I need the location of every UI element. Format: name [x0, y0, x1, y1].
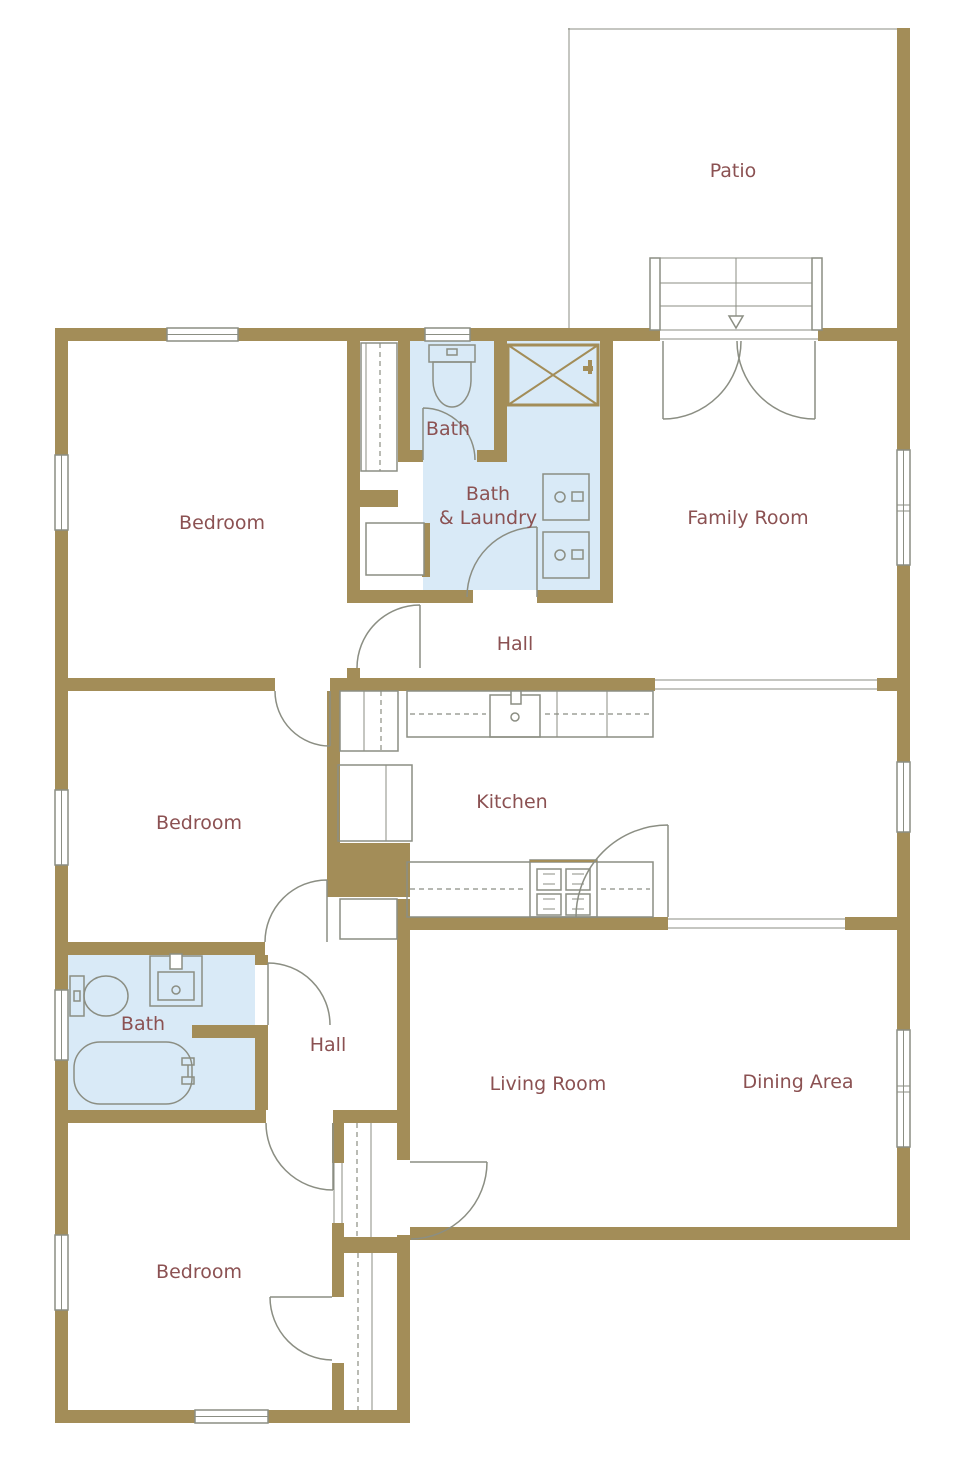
room-label-bath-laundry-line1: Bath — [466, 483, 510, 505]
wall-segment — [347, 668, 360, 678]
room-label-hall-top: Hall — [497, 633, 534, 655]
wall-segment — [410, 917, 668, 930]
door-arc — [268, 963, 330, 1025]
refrigerator-icon — [338, 765, 412, 841]
wall-segment — [332, 1223, 344, 1297]
stove-icon — [530, 860, 597, 917]
kitchen-sink-icon — [490, 691, 540, 737]
wall-segment — [397, 899, 410, 1110]
room-label-kitchen: Kitchen — [476, 791, 547, 813]
wall-segment — [332, 1363, 344, 1410]
wall-segment — [410, 1227, 910, 1240]
closet-sliding — [358, 1253, 372, 1410]
wall-segment — [55, 865, 68, 990]
wall-segment — [897, 1147, 910, 1240]
closet-sliding — [357, 1123, 371, 1237]
wall-segment — [398, 341, 410, 450]
door-arc — [266, 1123, 333, 1190]
window — [897, 762, 910, 832]
hall-closet — [340, 691, 398, 751]
wall-segment — [55, 942, 265, 955]
wall-segment — [470, 328, 660, 341]
floor-plan: Patio Bedroom Bath Bath & Laundry Family… — [0, 0, 960, 1465]
room-label-bath-laundry-line2: & Laundry — [439, 507, 537, 529]
wall-segment — [897, 565, 910, 762]
room-label-living-room: Living Room — [490, 1073, 607, 1095]
wall-segment — [600, 341, 613, 603]
stair-rail — [650, 258, 660, 330]
window — [897, 1030, 910, 1147]
stair-direction-arrow-icon — [729, 316, 743, 328]
door-arc — [357, 605, 420, 668]
wall-segment — [255, 955, 268, 965]
walls — [55, 28, 910, 1423]
wall-segment — [255, 1025, 268, 1110]
wall-segment — [330, 678, 655, 691]
wall-segment — [55, 1410, 195, 1423]
cabinet — [366, 523, 424, 575]
wall-segment — [55, 1060, 68, 1235]
wall-segment — [398, 450, 423, 462]
room-label-hall-bottom: Hall — [310, 1034, 347, 1056]
stair-rail — [812, 258, 822, 330]
wall-segment — [818, 328, 910, 341]
window — [55, 455, 68, 530]
stairs — [650, 258, 822, 330]
wall-segment — [897, 832, 910, 1030]
wall-segment — [55, 678, 275, 691]
room-label-bath-top: Bath — [426, 418, 470, 440]
window — [55, 990, 68, 1060]
wall-segment — [55, 328, 167, 341]
wall-segment — [268, 1410, 410, 1423]
wall-segment — [347, 341, 360, 600]
wall-segment — [55, 1310, 68, 1423]
wall-segment — [55, 530, 68, 790]
room-label-family-room: Family Room — [687, 507, 808, 529]
window — [167, 328, 238, 341]
room-label-bedroom-middle: Bedroom — [156, 812, 242, 834]
wall-segment — [238, 328, 425, 341]
window — [897, 450, 910, 565]
bath-laundry-floor — [507, 341, 600, 590]
wall-segment — [55, 1110, 266, 1123]
closet-sliding — [361, 343, 397, 471]
wall-segment — [360, 490, 398, 507]
room-label-bath-bottom: Bath — [121, 1013, 165, 1035]
wall-segment — [327, 843, 410, 897]
wall-segment — [494, 341, 507, 462]
window — [55, 1235, 68, 1310]
door-arc — [265, 880, 327, 942]
door-arc — [270, 1297, 332, 1360]
wall-segment — [347, 590, 473, 603]
linen-closet — [340, 899, 397, 939]
window — [195, 1410, 268, 1423]
wall-segment — [897, 28, 910, 450]
door-arc — [275, 691, 330, 746]
wall-segment — [397, 1235, 410, 1423]
wall-segment — [192, 1025, 255, 1038]
wall-segment — [877, 678, 897, 691]
wall-segment — [845, 917, 897, 930]
wall-segment — [332, 1123, 344, 1163]
wall-segment — [332, 1237, 410, 1253]
room-label-bedroom-top: Bedroom — [179, 512, 265, 534]
wall-segment — [333, 1110, 410, 1123]
room-label-patio: Patio — [710, 160, 757, 182]
room-label-dining-area: Dining Area — [742, 1071, 853, 1093]
french-doors — [663, 341, 815, 419]
counter — [407, 691, 653, 737]
window — [425, 328, 470, 341]
wall-segment — [55, 328, 68, 455]
window — [55, 790, 68, 865]
room-label-bedroom-bottom: Bedroom — [156, 1261, 242, 1283]
